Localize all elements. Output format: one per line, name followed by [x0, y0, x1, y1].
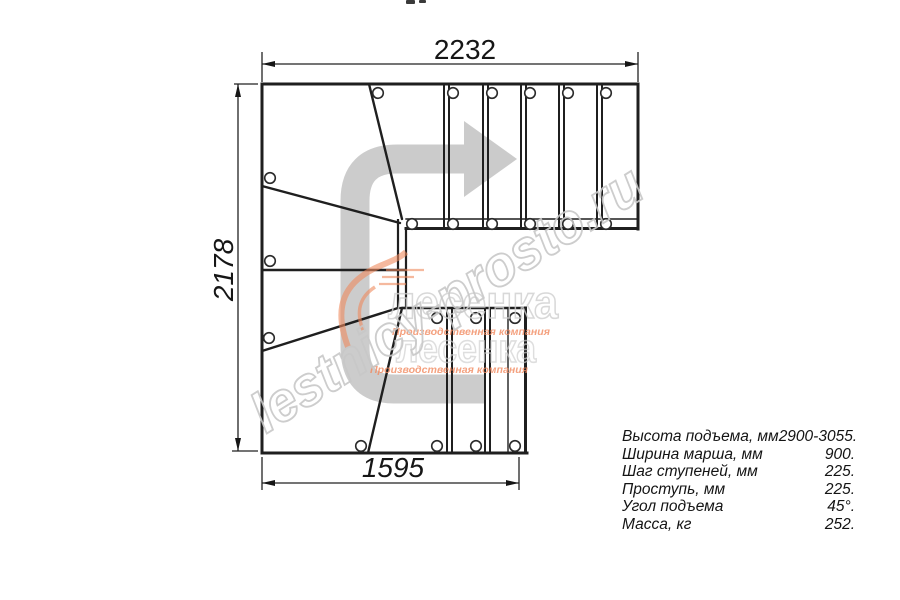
spec-value: 252.: [825, 516, 855, 534]
cropped-artifact: [406, 0, 426, 4]
spec-row: Ширина марша, мм 900.: [622, 446, 855, 464]
spec-row: Масса, кг 252.: [622, 516, 855, 534]
dimension-bottom: 1595: [262, 452, 519, 490]
spec-value: 225.: [825, 481, 855, 499]
spec-value: 2900-3055.: [779, 428, 857, 446]
spec-label: Масса, кг: [622, 516, 691, 534]
spec-label: Проступь, мм: [622, 481, 725, 499]
dimension-top: 2232: [262, 34, 638, 82]
spec-value: 225.: [825, 463, 855, 481]
spec-row: Шаг ступеней, мм 225.: [622, 463, 855, 481]
dimension-top-value: 2232: [434, 34, 496, 65]
staircase-plan-page: 2232 2178 1595: [0, 0, 900, 600]
spec-label: Высота подъема, мм: [622, 428, 779, 446]
spec-row: Высота подъема, мм 2900-3055.: [622, 428, 855, 446]
spec-row: Угол подъема 45°.: [622, 498, 855, 516]
spec-row: Проступь, мм 225.: [622, 481, 855, 499]
spec-label: Ширина марша, мм: [622, 446, 763, 464]
dimension-left-value: 2178: [208, 238, 239, 302]
spec-value: 45°.: [827, 498, 855, 516]
dimension-bottom-value: 1595: [362, 452, 425, 483]
spec-label: Шаг ступеней, мм: [622, 463, 758, 481]
spec-value: 900.: [825, 446, 855, 464]
spec-label: Угол подъема: [622, 498, 723, 516]
specs-table: Высота подъема, мм 2900-3055. Ширина мар…: [622, 428, 855, 534]
